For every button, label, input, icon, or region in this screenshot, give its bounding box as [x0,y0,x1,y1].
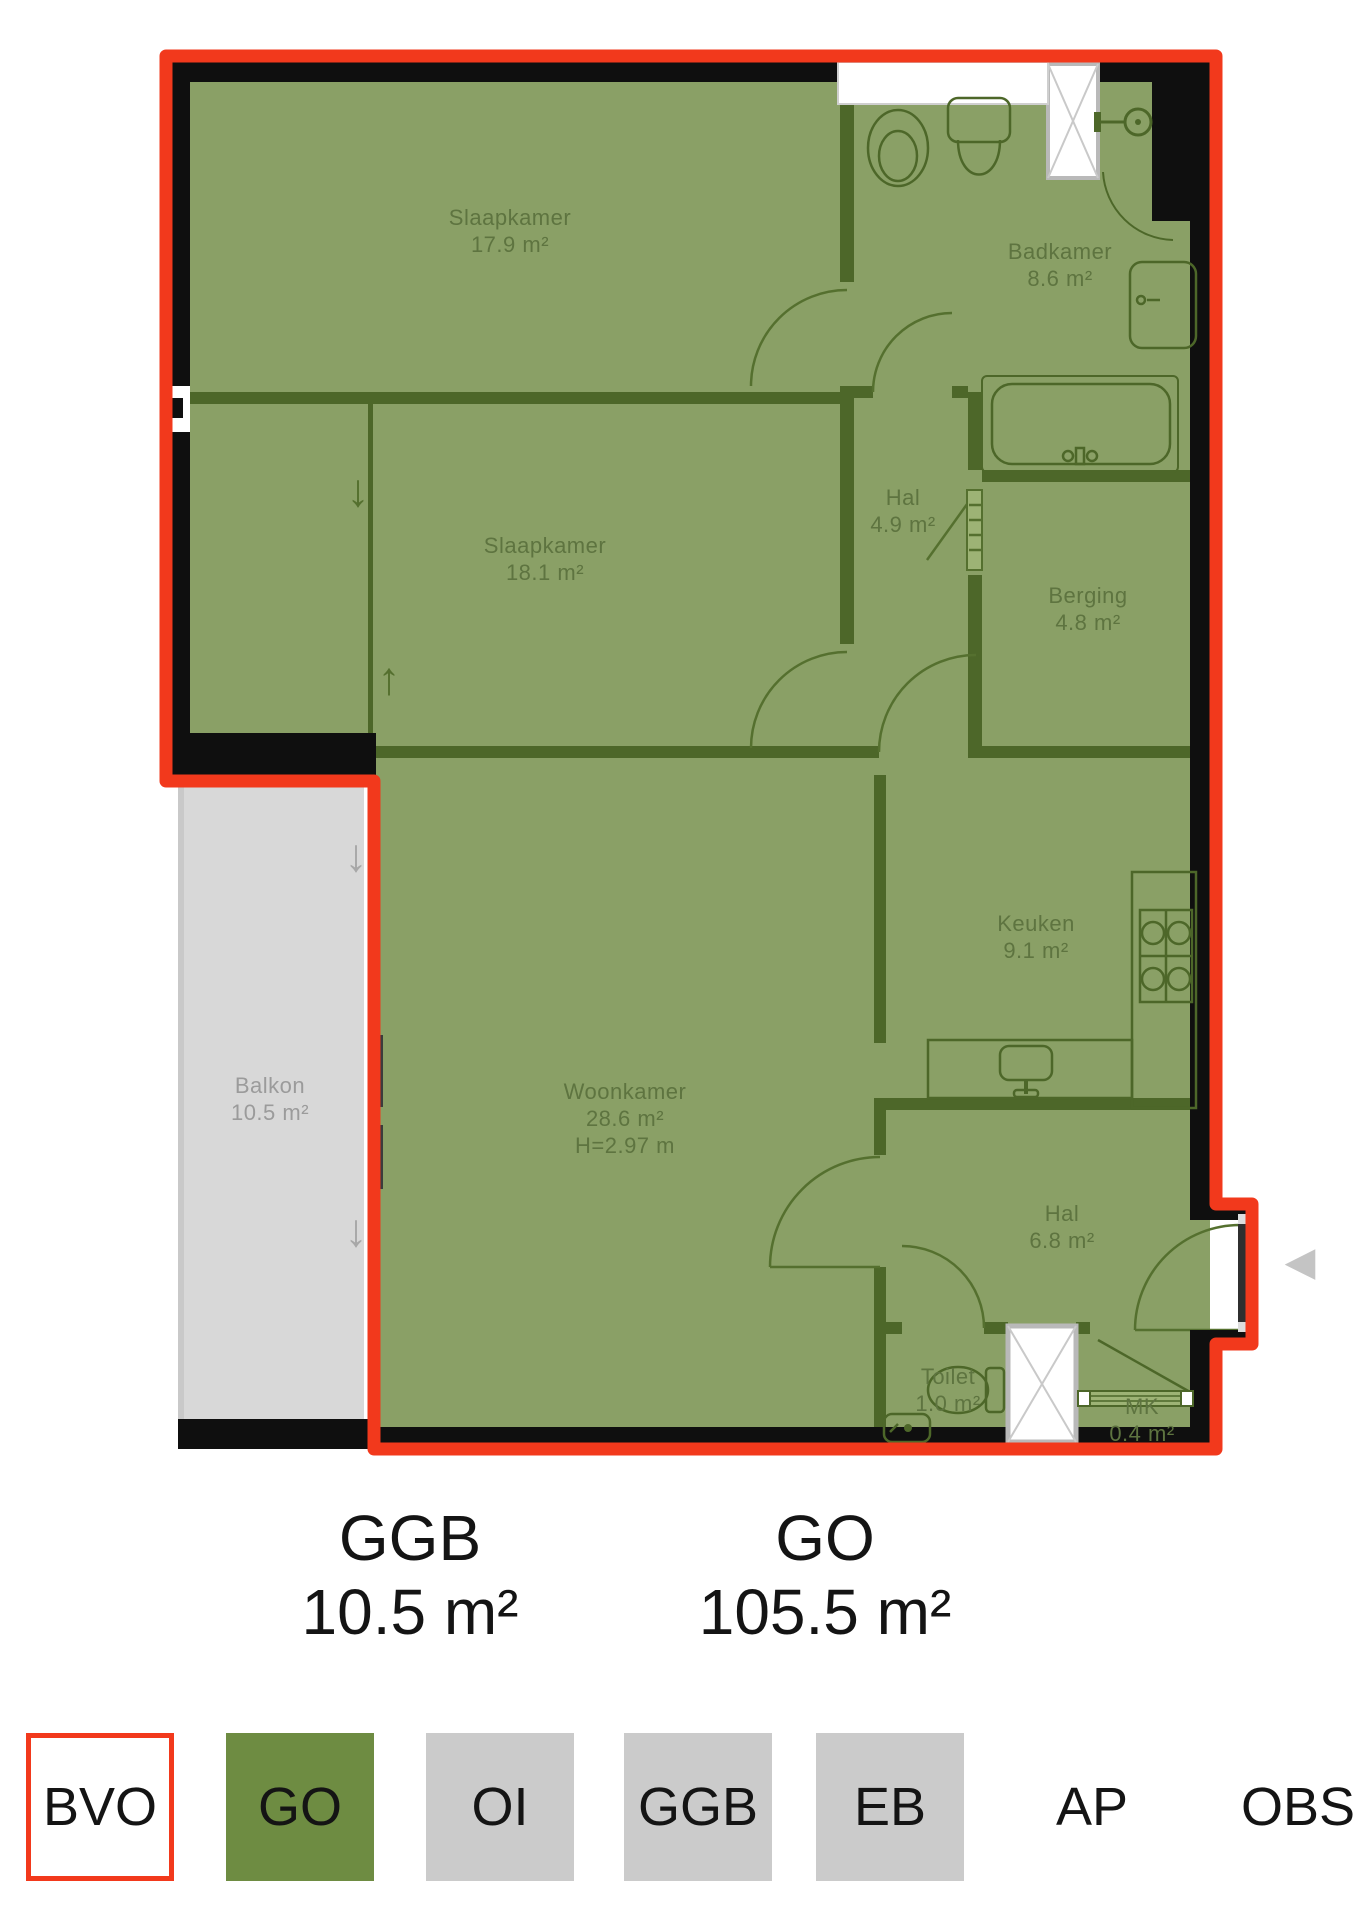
room-area: 8.6 m² [1008,266,1112,293]
room-label-keuken: Keuken 9.1 m² [997,911,1075,965]
legend-label: AP [1056,1776,1128,1838]
room-area: 28.6 m² [564,1106,687,1133]
room-area: 4.9 m² [870,512,935,539]
room-label-toilet: Toilet 1.0 m² [915,1364,980,1418]
summary-go: GO 105.5 m² [699,1502,952,1649]
arrow-down-icon: ↓ [345,1207,368,1253]
summary-value: 105.5 m² [699,1576,952,1650]
room-label-badkamer: Badkamer 8.6 m² [1008,239,1112,293]
room-name: Balkon [231,1073,309,1100]
legend-item-go: GO [226,1733,374,1881]
legend-label: EB [854,1776,926,1838]
room-name: MK [1109,1394,1174,1421]
room-label-berging: Berging 4.8 m² [1048,583,1127,637]
room-area: 0.4 m² [1109,1421,1174,1448]
room-name: Hal [1029,1201,1094,1228]
floorplan-svg [0,0,1358,1920]
floorplan-page: { "plan": { "rooms": [ {"name": "Slaapka… [0,0,1358,1920]
room-name: Toilet [915,1364,980,1391]
room-name: Hal [870,485,935,512]
summary-ggb: GGB 10.5 m² [302,1502,519,1649]
legend-label: GO [258,1776,342,1838]
room-name: Slaapkamer [484,533,606,560]
legend-item-ap: AP [1018,1733,1166,1881]
arrow-down-icon: ↓ [347,467,370,513]
summary-code: GO [699,1502,952,1576]
legend-item-obs: OBS [1224,1733,1358,1881]
room-area: 10.5 m² [231,1100,309,1127]
room-label-woonkamer: Woonkamer 28.6 m² H=2.97 m [564,1079,687,1159]
legend-label: OBS [1241,1776,1355,1838]
arrow-down-icon: ↓ [345,832,368,878]
room-area: 1.0 m² [915,1391,980,1418]
room-area: 18.1 m² [484,560,606,587]
summary-code: GGB [302,1502,519,1576]
room-label-hal-2: Hal 6.8 m² [1029,1201,1094,1255]
legend-label: BVO [43,1776,157,1838]
legend-item-oi: OI [426,1733,574,1881]
room-label-slaapkamer-1: Slaapkamer 17.9 m² [449,205,571,259]
room-height: H=2.97 m [564,1132,687,1159]
room-name: Berging [1048,583,1127,610]
shaft-icon-top [1048,64,1098,178]
room-name: Slaapkamer [449,205,571,232]
legend-item-eb: EB [816,1733,964,1881]
legend-label: GGB [638,1776,758,1838]
stove-icon [1140,910,1192,1002]
room-name: Woonkamer [564,1079,687,1106]
room-name: Badkamer [1008,239,1112,266]
legend-item-bvo: BVO [26,1733,174,1881]
room-label-balkon: Balkon 10.5 m² [231,1073,309,1127]
room-label-slaapkamer-2: Slaapkamer 18.1 m² [484,533,606,587]
bathroom-counter [838,62,1048,104]
room-area: 17.9 m² [449,232,571,259]
room-label-hal-1: Hal 4.9 m² [870,485,935,539]
room-area: 4.8 m² [1048,610,1127,637]
legend-item-ggb: GGB [624,1733,772,1881]
legend-label: OI [471,1776,528,1838]
room-area: 6.8 m² [1029,1228,1094,1255]
room-name: Keuken [997,911,1075,938]
room-label-mk: MK 0.4 m² [1109,1394,1174,1448]
summary-value: 10.5 m² [302,1576,519,1650]
arrow-up-icon: ↑ [378,655,401,701]
room-area: 9.1 m² [997,938,1075,965]
entrance-arrow-icon: ◀ [1285,1242,1316,1282]
shaft-icon-bottom [1008,1326,1076,1442]
